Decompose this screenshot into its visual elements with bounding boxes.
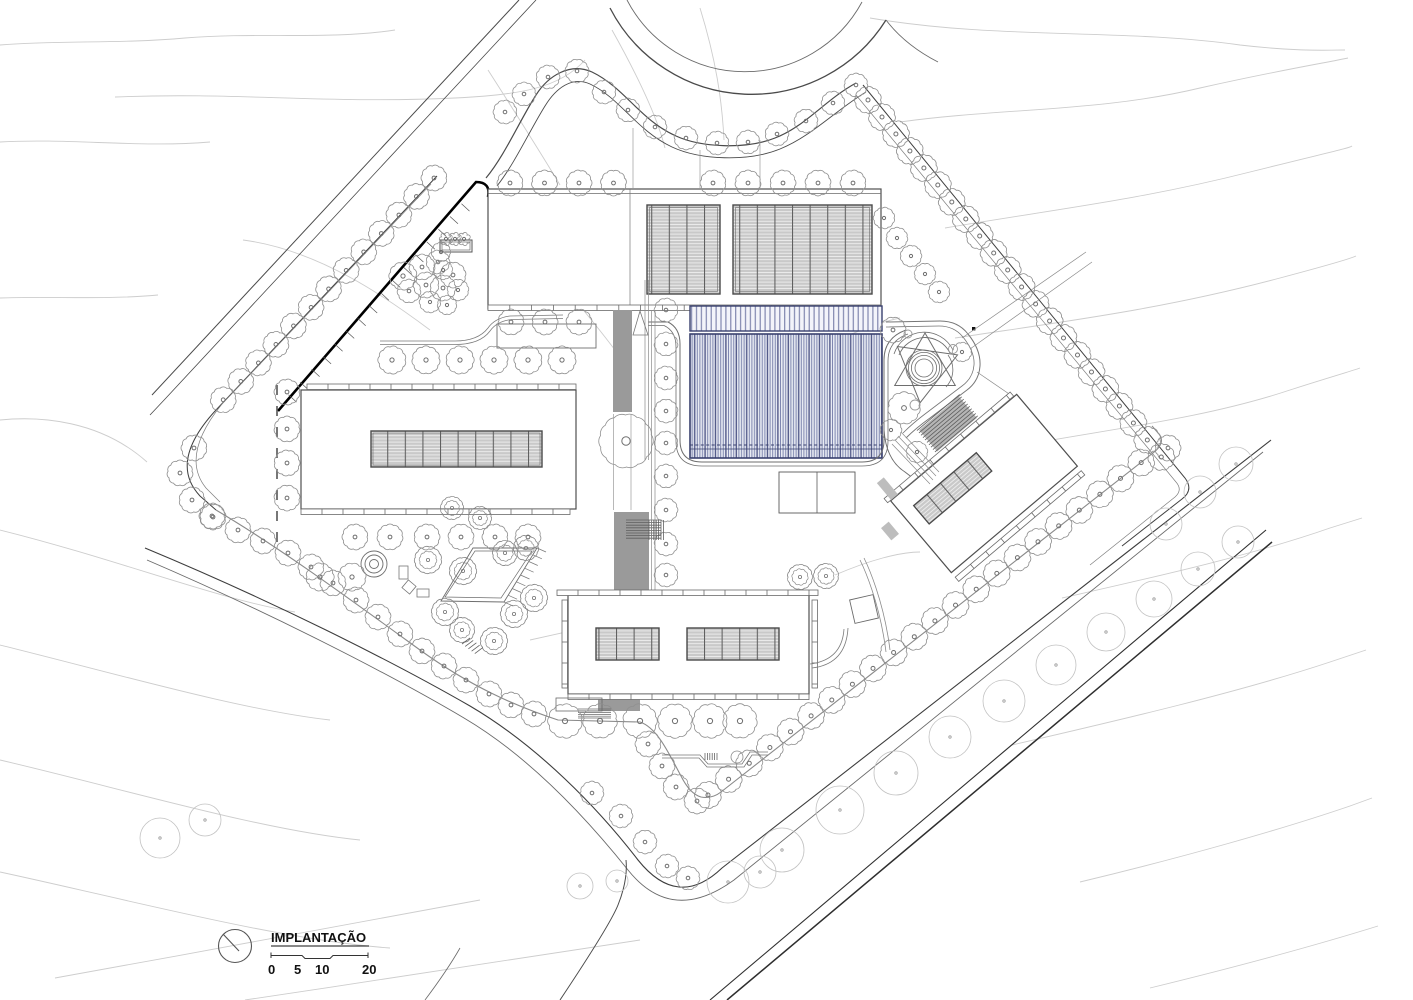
svg-text:20: 20: [362, 962, 376, 977]
svg-text:IMPLANTAÇÃO: IMPLANTAÇÃO: [271, 930, 366, 945]
svg-text:5: 5: [294, 962, 301, 977]
svg-text:10: 10: [315, 962, 329, 977]
svg-text:0: 0: [268, 962, 275, 977]
